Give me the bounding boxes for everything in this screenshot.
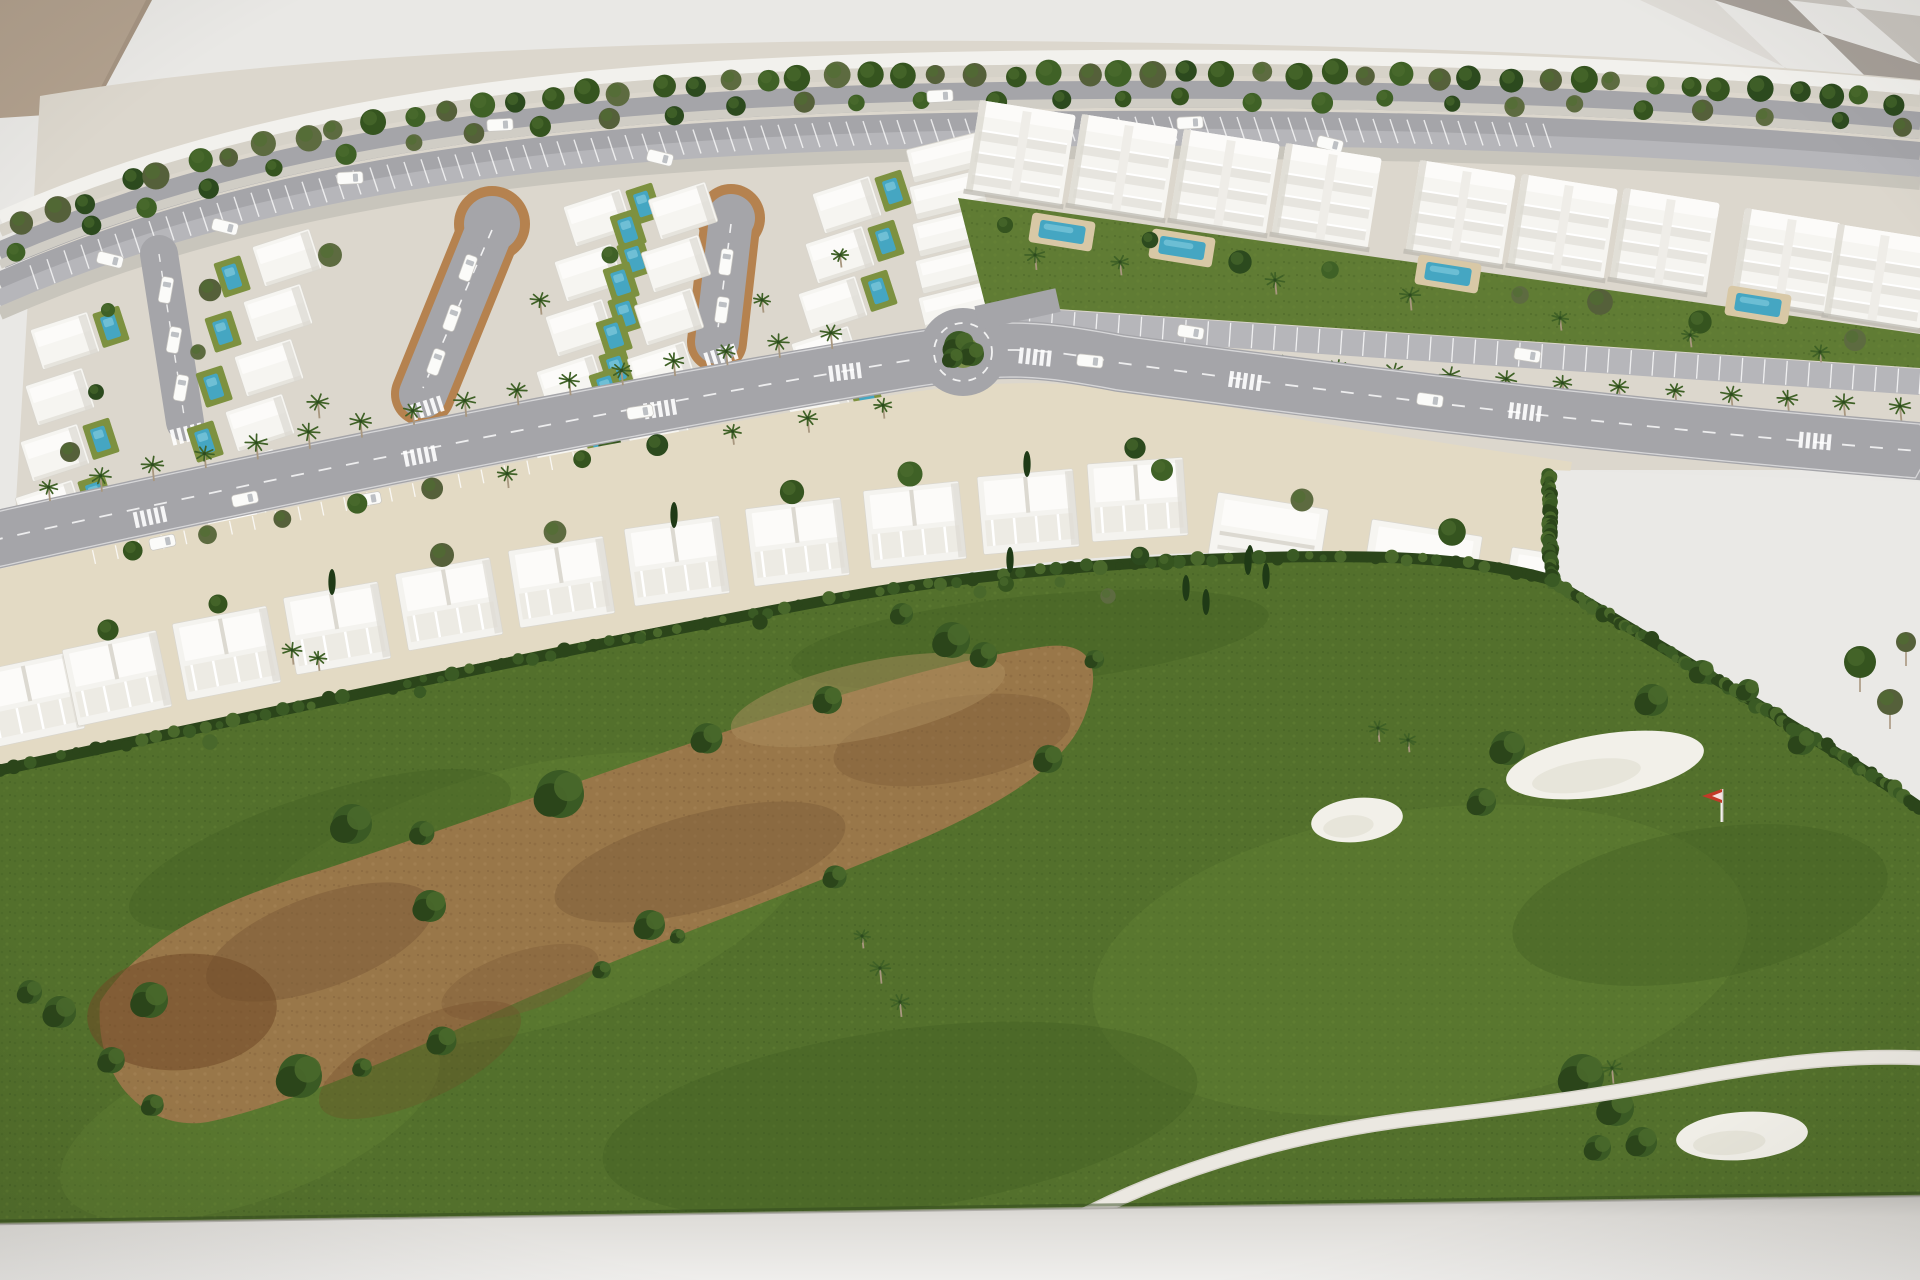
photo-vignette	[0, 0, 1920, 1280]
model-scene-svg	[0, 0, 1920, 1280]
vignette-overlay	[0, 0, 1920, 1280]
scale-model-photo	[0, 0, 1920, 1280]
